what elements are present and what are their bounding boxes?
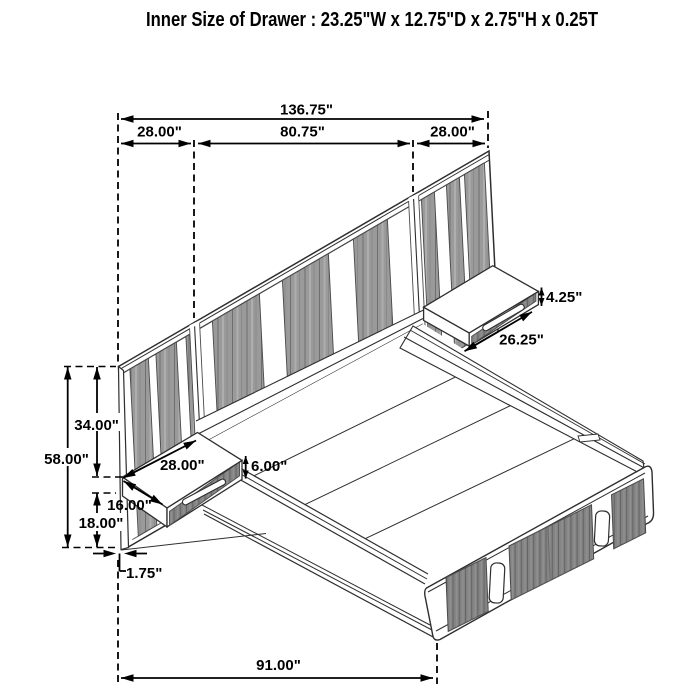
svg-text:1.75": 1.75" (126, 565, 162, 582)
svg-text:80.75": 80.75" (280, 124, 325, 141)
svg-text:28.00": 28.00" (430, 124, 475, 141)
svg-text:136.75": 136.75" (280, 102, 333, 119)
svg-text:18.00": 18.00" (79, 515, 124, 532)
svg-text:6.00": 6.00" (251, 458, 287, 475)
svg-text:Inner Size of Drawer : 23.25"W: Inner Size of Drawer : 23.25"W x 12.75"D… (146, 8, 598, 31)
svg-text:4.25": 4.25" (546, 289, 582, 306)
svg-text:91.00": 91.00" (256, 657, 301, 674)
svg-text:28.00": 28.00" (160, 457, 205, 474)
svg-text:58.00": 58.00" (44, 451, 89, 468)
svg-text:28.00": 28.00" (137, 124, 182, 141)
svg-text:16.00": 16.00" (107, 497, 152, 514)
svg-text:34.00": 34.00" (74, 417, 119, 434)
svg-text:26.25": 26.25" (499, 332, 544, 349)
